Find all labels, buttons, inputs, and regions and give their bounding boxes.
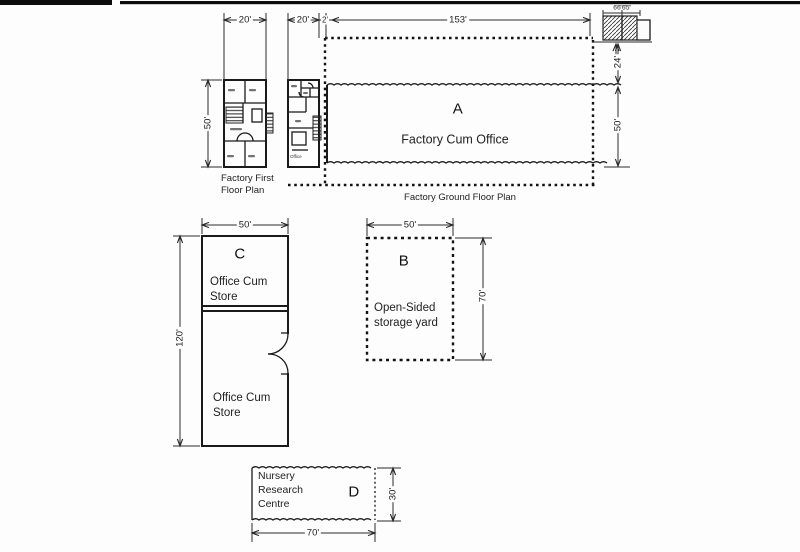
dim-boundary-gap: 2': [321, 16, 329, 25]
dim-b-height: 70': [478, 288, 489, 304]
factory-rear-wall: [327, 162, 607, 163]
caption-ground-floor-plan: Factory Ground Floor Plan: [404, 192, 516, 204]
dim-d-height: 30': [388, 486, 399, 502]
building-b-name: Open-Sided storage yard: [374, 301, 438, 332]
dim-c-height: 120': [175, 327, 186, 349]
staircase-hatch: [226, 107, 243, 123]
site-plan-drawing: [0, 0, 800, 552]
room-label-smudge: [230, 128, 242, 130]
factory-front-wall: [327, 84, 621, 85]
toilet-detail-block: [593, 10, 652, 58]
room-label-smudge: [295, 120, 301, 122]
dim-factory-length: 153': [447, 15, 469, 26]
door-arc: [245, 133, 253, 141]
room-label-smudge: [228, 89, 235, 91]
room-label-smudge: [249, 89, 256, 91]
dim-factory-front-depth: 24': [613, 54, 624, 70]
dim-c-width: 50': [237, 220, 253, 231]
building-c-letter: C: [234, 246, 245, 263]
room-label-smudge: [303, 92, 308, 94]
double-door-arc: [268, 354, 288, 373]
building-b-letter: B: [399, 253, 409, 270]
building-b-outline: [367, 238, 453, 360]
dim-ground-unit-width: 20': [295, 15, 311, 26]
dim-factory-depth: 50': [613, 117, 624, 133]
double-door-arc: [268, 334, 288, 354]
scan-top-edge: [0, 0, 800, 5]
dim-toilet-detail: 6'6"6'5": [611, 5, 633, 12]
building-a-name: Factory Cum Office: [401, 132, 508, 149]
ground-unit-office-label: Office: [290, 155, 302, 160]
site-plan-page: 20' 20' 2' 153' 24' 50' 50' 6'6"6'5" 50'…: [0, 0, 800, 552]
dim-b-width: 50': [402, 220, 418, 231]
building-d-name: Nursery Research Centre: [258, 469, 303, 511]
staircase-hatch: [313, 116, 321, 140]
factory-first-floor-plan: [224, 80, 273, 167]
room-label-smudge: [227, 155, 234, 157]
building-d-letter: D: [348, 484, 359, 501]
dim-d-width: 70': [305, 528, 321, 539]
dim-first-floor-width: 20': [237, 15, 253, 26]
caption-first-floor-plan: Factory First Floor Plan: [221, 173, 274, 198]
side-stair-hatch: [266, 113, 273, 133]
building-c-upper-room-label: Office Cum Store: [210, 275, 267, 306]
door-arc: [308, 83, 313, 88]
room-label-smudge: [291, 85, 297, 87]
building-a-letter: A: [453, 101, 463, 118]
door-arc: [237, 133, 245, 141]
building-c-lower-room-label: Office Cum Store: [213, 391, 270, 422]
room-label-smudge: [248, 155, 255, 157]
dim-first-floor-height: 50': [203, 115, 214, 131]
